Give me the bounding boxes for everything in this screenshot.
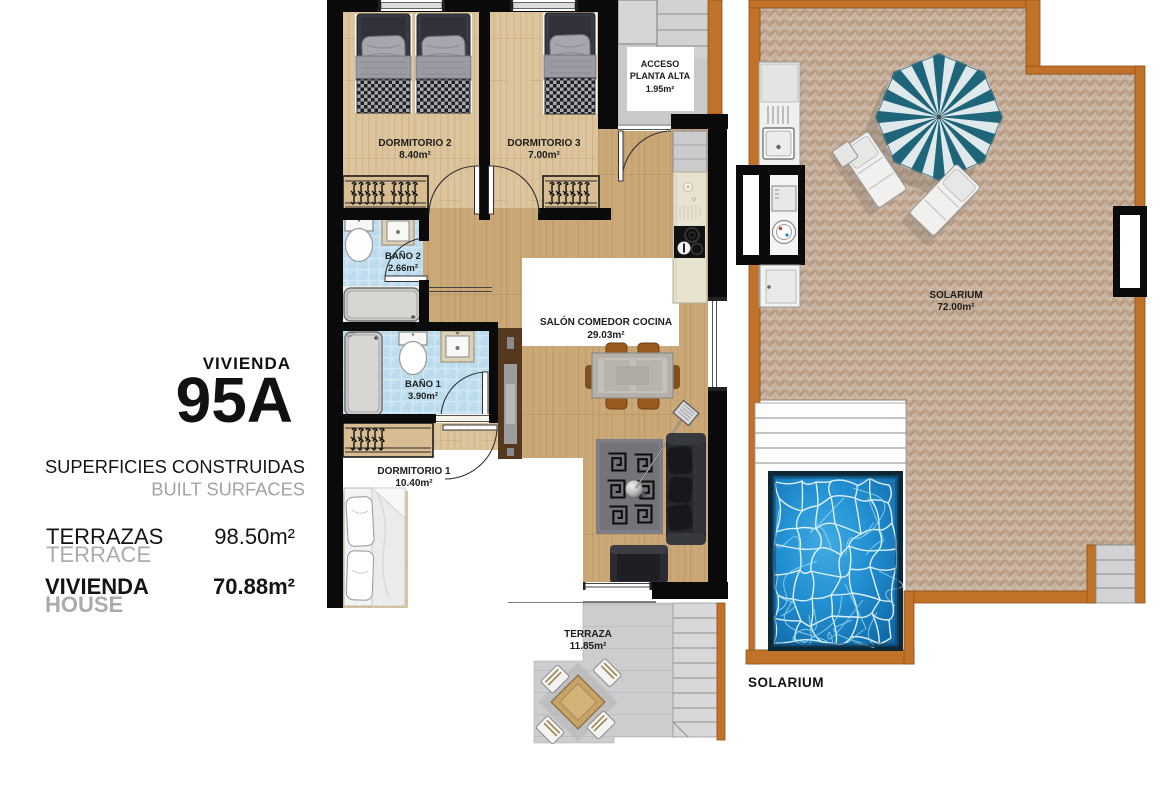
- svg-text:DORMITORIO 1: DORMITORIO 1: [377, 466, 451, 477]
- svg-text:10.40m²: 10.40m²: [395, 478, 433, 489]
- svg-text:8.40m²: 8.40m²: [399, 150, 431, 161]
- svg-text:1.95m²: 1.95m²: [646, 84, 675, 94]
- svg-text:SUPERFICIES CONSTRUIDAS: SUPERFICIES CONSTRUIDAS: [45, 456, 305, 477]
- svg-text:95A: 95A: [176, 364, 293, 436]
- svg-text:BAÑO 1: BAÑO 1: [405, 379, 442, 390]
- svg-text:98.50m²: 98.50m²: [214, 524, 295, 549]
- svg-text:7.00m²: 7.00m²: [528, 150, 560, 161]
- svg-text:29.03m²: 29.03m²: [587, 330, 625, 341]
- svg-text:70.88m²: 70.88m²: [213, 574, 295, 599]
- svg-text:72.00m²: 72.00m²: [937, 302, 975, 313]
- svg-text:BAÑO 2: BAÑO 2: [385, 251, 421, 262]
- svg-text:3.90m²: 3.90m²: [408, 391, 438, 402]
- svg-text:11.85m²: 11.85m²: [570, 641, 607, 652]
- svg-text:SALÓN COMEDOR COCINA: SALÓN COMEDOR COCINA: [540, 315, 672, 328]
- svg-text:TERRACE: TERRACE: [46, 542, 151, 567]
- svg-text:SOLARIUM: SOLARIUM: [748, 675, 824, 690]
- svg-text:DORMITORIO 3: DORMITORIO 3: [507, 138, 581, 149]
- svg-text:2.66m²: 2.66m²: [388, 263, 418, 274]
- svg-text:ACCESO: ACCESO: [641, 59, 680, 69]
- svg-text:DORMITORIO 2: DORMITORIO 2: [378, 138, 452, 149]
- svg-text:PLANTA ALTA: PLANTA ALTA: [630, 71, 691, 81]
- svg-text:HOUSE: HOUSE: [45, 592, 123, 617]
- svg-text:TERRAZA: TERRAZA: [564, 629, 612, 640]
- svg-text:SOLARIUM: SOLARIUM: [929, 290, 982, 301]
- svg-text:BUILT SURFACES: BUILT SURFACES: [151, 479, 305, 500]
